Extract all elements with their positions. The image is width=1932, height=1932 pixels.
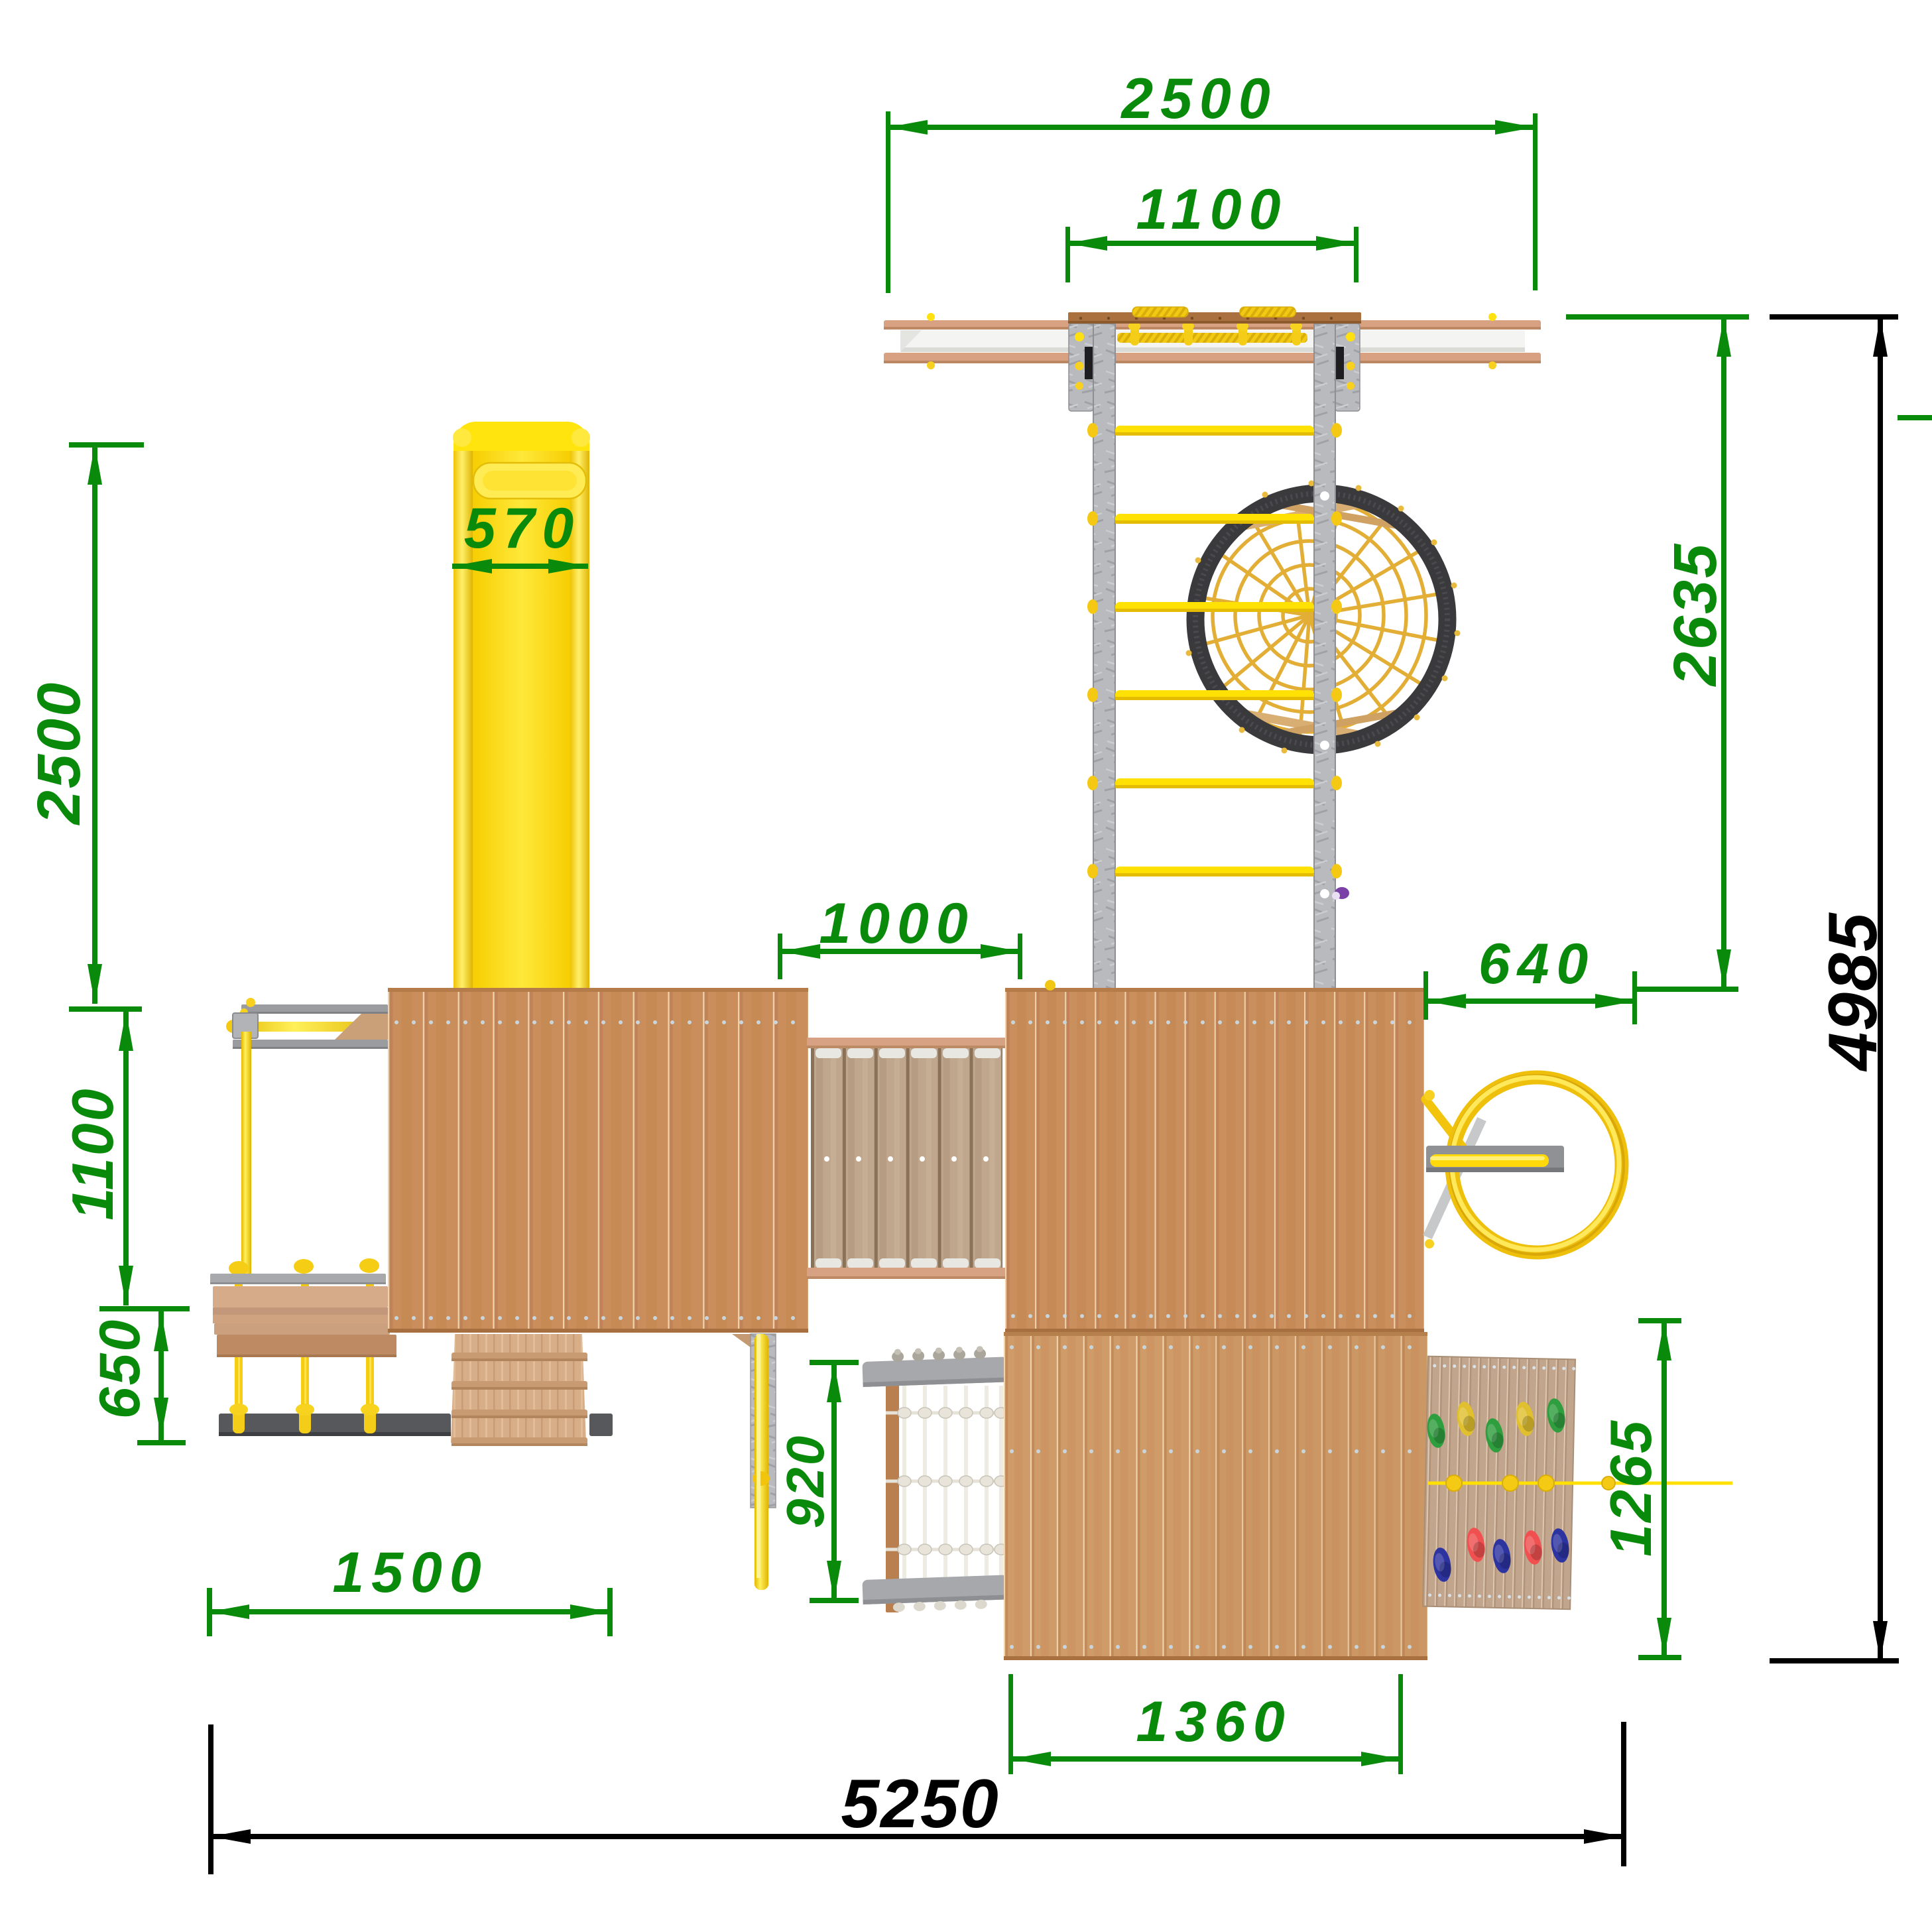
svg-text:1265: 1265: [1598, 1419, 1663, 1557]
svg-text:640: 640: [1479, 932, 1596, 996]
svg-text:920: 920: [776, 1434, 835, 1528]
svg-text:1100: 1100: [1136, 178, 1288, 241]
svg-text:2500: 2500: [25, 681, 93, 826]
svg-text:1500: 1500: [332, 1541, 488, 1604]
svg-text:2635: 2635: [1661, 542, 1729, 688]
svg-text:1100: 1100: [60, 1087, 125, 1220]
svg-text:570: 570: [464, 497, 581, 560]
svg-text:4985: 4985: [1815, 912, 1892, 1072]
svg-text:5250: 5250: [841, 1766, 999, 1842]
svg-text:1360: 1360: [1136, 1690, 1292, 1754]
svg-text:2500: 2500: [1120, 67, 1277, 131]
svg-text:650: 650: [88, 1318, 152, 1419]
svg-text:1000: 1000: [819, 892, 975, 955]
